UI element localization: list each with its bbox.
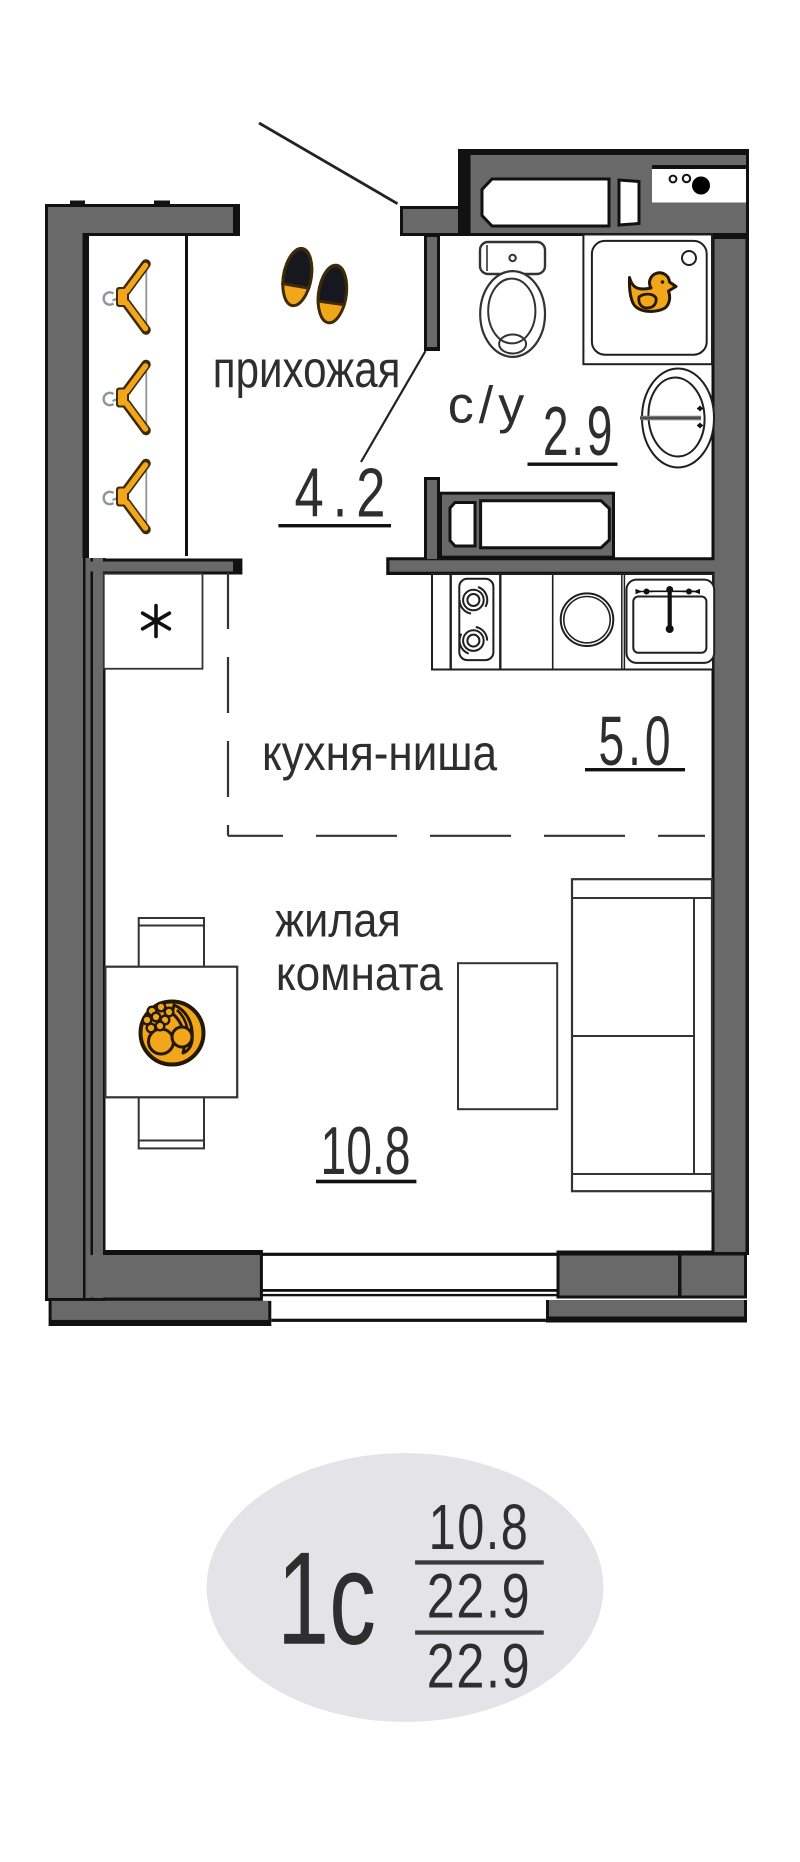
svg-text:прихожая: прихожая bbox=[213, 341, 401, 399]
svg-text:10.8: 10.8 bbox=[321, 1113, 411, 1189]
svg-text:с/у: с/у bbox=[448, 377, 529, 435]
svg-text:кухня-ниша: кухня-ниша bbox=[262, 724, 498, 780]
svg-text:1с: 1с bbox=[277, 1525, 376, 1673]
svg-text:2.9: 2.9 bbox=[543, 391, 615, 470]
svg-text:22.9: 22.9 bbox=[427, 1561, 531, 1632]
svg-text:10.8: 10.8 bbox=[429, 1493, 530, 1564]
svg-text:4.2: 4.2 bbox=[295, 454, 395, 532]
svg-text:22.9: 22.9 bbox=[427, 1631, 531, 1702]
svg-text:комната: комната bbox=[276, 946, 443, 1000]
svg-text:жилая: жилая bbox=[275, 893, 401, 947]
